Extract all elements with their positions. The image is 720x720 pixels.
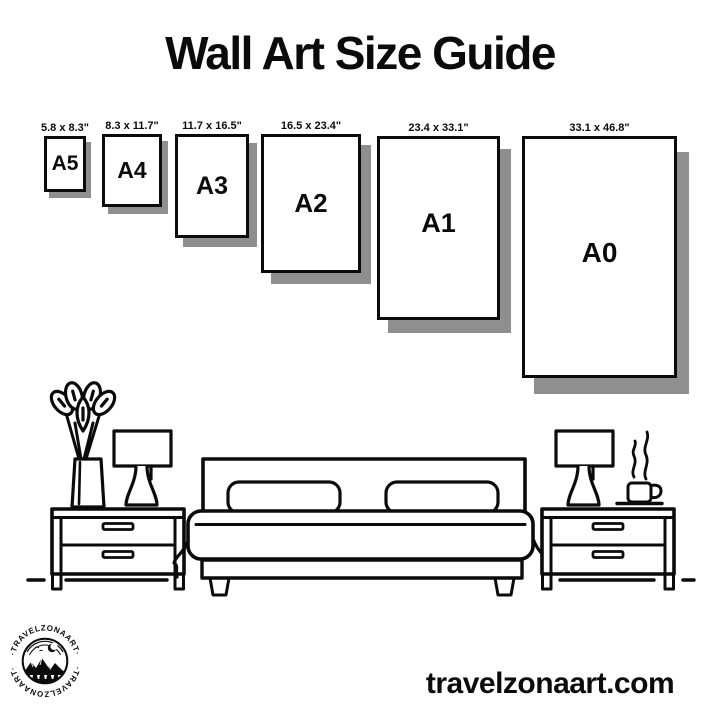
page-root: Wall Art Size Guide 5.8 x 8.3" A5 8.3 x … [0,0,720,720]
lamp-icon-left [114,431,171,505]
size-swatch-a4: 8.3 x 11.7" A4 [102,134,162,207]
website-text: travelzonaart.com [390,667,710,701]
size-swatch-a3: 11.7 x 16.5" A3 [175,134,249,238]
steam-icon [633,432,648,479]
coffee-cup-icon [617,432,662,504]
bed-icon [174,459,548,595]
size-name-label: A1 [421,208,456,249]
size-swatch-a5: 5.8 x 8.3" A5 [44,136,86,192]
plant-icon [47,381,119,507]
size-name-label: A0 [582,237,618,277]
size-name-label: A5 [52,152,79,176]
bedroom-illustration [0,378,720,608]
size-swatch-a2: 16.5 x 23.4" A2 [261,134,361,273]
pillow-left [228,482,340,513]
size-name-label: A3 [196,172,228,201]
size-dimensions-label: 23.4 x 33.1" [408,122,468,134]
brand-logo: ·TRAVELZONAART· ·TRAVELZONAART· [5,618,85,704]
size-swatch-a0: 33.1 x 46.8" A0 [522,136,677,378]
size-swatch-a1: 23.4 x 33.1" A1 [377,136,500,320]
size-name-label: A2 [294,188,327,219]
size-dimensions-label: 16.5 x 23.4" [281,120,341,132]
size-dimensions-label: 11.7 x 16.5" [182,120,242,132]
page-title: Wall Art Size Guide [0,26,720,80]
size-name-label: A4 [117,157,146,184]
pillow-right [386,482,498,513]
size-dimensions-label: 8.3 x 11.7" [105,120,159,132]
size-dimensions-label: 5.8 x 8.3" [41,122,89,134]
size-dimensions-label: 33.1 x 46.8" [569,122,629,134]
nightstand-left [52,509,184,589]
nightstand-right [542,509,674,589]
lamp-icon-right [556,431,613,505]
